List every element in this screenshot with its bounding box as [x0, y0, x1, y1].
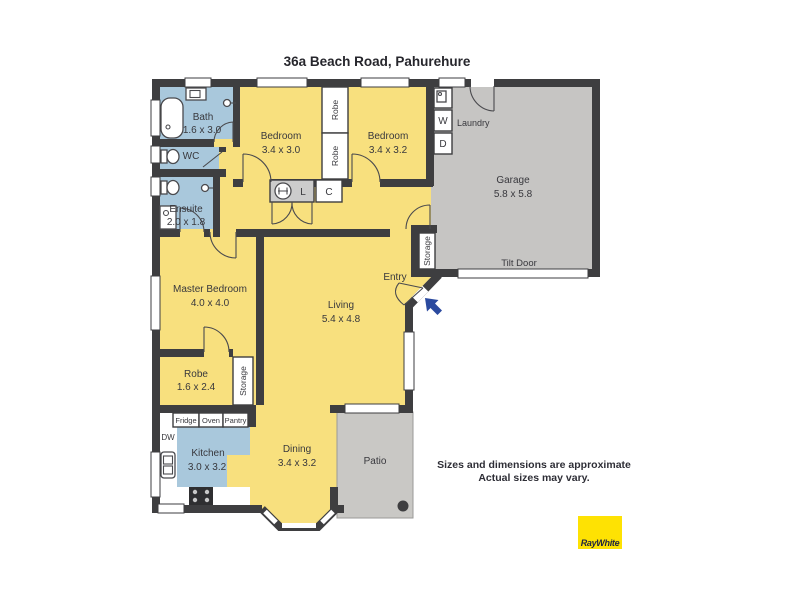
garage-tilt-door-label: Tilt Door: [501, 258, 537, 269]
room-kitchen-dims: 3.0 x 3.2: [188, 462, 227, 473]
wall: [152, 139, 214, 147]
wall: [229, 349, 233, 357]
robe-closet-2-label: Robe: [330, 146, 340, 167]
wc-toilet: [167, 150, 179, 164]
wall: [592, 79, 600, 277]
wall: [219, 147, 226, 152]
cupboard-label: C: [325, 187, 332, 198]
cooktop-burner: [193, 498, 197, 502]
room-kitchen-label: Kitchen: [191, 448, 224, 459]
window-tilt-door: [458, 269, 588, 278]
room-bath-dims: 1.6 x 3.0: [183, 125, 222, 136]
wall: [426, 87, 434, 186]
room-ensuite-dims: 2.0 x 1.8: [167, 217, 206, 228]
wall: [411, 225, 419, 277]
window: [361, 78, 409, 87]
room-entry-label: Entry: [383, 272, 406, 283]
wall: [588, 269, 600, 277]
room-bedroom2-dims: 3.4 x 3.2: [369, 145, 408, 156]
wall: [152, 349, 204, 357]
wall: [256, 236, 264, 405]
cooktop-burner: [193, 490, 197, 494]
room-living-label: Living: [328, 300, 354, 311]
raywhite-logo-text: RayWhite: [581, 538, 620, 548]
window: [345, 404, 399, 413]
window: [404, 332, 414, 390]
room-bedroom1-label: Bedroom: [261, 131, 302, 142]
wall: [233, 139, 240, 147]
patio-post: [398, 501, 409, 512]
window: [151, 276, 160, 330]
storage-garage-label: Storage: [422, 236, 432, 266]
disclaimer-line2: Actual sizes may vary.: [437, 472, 631, 485]
wall: [306, 79, 362, 87]
wall: [494, 79, 600, 87]
linen-label: L: [300, 187, 306, 198]
wall: [204, 229, 210, 237]
window: [151, 177, 160, 196]
bath-vanity: [186, 88, 206, 100]
room-dining-dims: 3.4 x 3.2: [278, 458, 317, 469]
raywhite-logo: RayWhite: [578, 516, 622, 549]
window: [185, 78, 211, 87]
wall: [213, 177, 220, 237]
wall: [233, 179, 243, 187]
bathtub: [161, 98, 183, 138]
window: [151, 452, 160, 497]
ensuite-toilet: [161, 181, 167, 194]
wall: [398, 405, 413, 413]
wall: [152, 229, 180, 237]
floorplan-page: 36a Beach Road, Pahurehure: [0, 0, 800, 600]
floorplan-drawing: Bath 1.6 x 3.0 WC Ensuite 2.0 x 1.8 Bedr…: [0, 0, 800, 600]
cooktop-burner: [205, 490, 209, 494]
room-wc-label: WC: [183, 151, 200, 162]
dishwasher-label: DW: [161, 433, 175, 442]
pantry-label: Pantry: [225, 416, 247, 425]
ensuite-toilet: [167, 181, 179, 195]
room-living-dims: 5.4 x 4.8: [322, 314, 361, 325]
wall: [236, 229, 390, 237]
room-bedroom1-dims: 3.4 x 3.0: [262, 145, 301, 156]
storage-hall-label: Storage: [238, 366, 248, 396]
wall: [330, 405, 346, 413]
washer-label: W: [438, 116, 448, 127]
cooktop: [189, 487, 213, 505]
room-garage-dims: 5.8 x 5.8: [494, 189, 533, 200]
wall: [210, 79, 258, 87]
dryer-label: D: [439, 139, 446, 150]
entry-arrow-icon: [425, 298, 442, 315]
room-dining-label: Dining: [283, 444, 311, 455]
wall: [380, 179, 433, 187]
room-ensuite-label: Ensuite: [169, 204, 203, 215]
window: [151, 146, 160, 163]
room-laundry-label: Laundry: [457, 118, 490, 128]
room-master-dims: 4.0 x 4.0: [191, 298, 230, 309]
cooktop-burner: [205, 498, 209, 502]
oven-label: Oven: [202, 416, 220, 425]
wall: [152, 405, 256, 413]
window: [158, 504, 184, 513]
room-garage-label: Garage: [496, 175, 530, 186]
room-patio-label: Patio: [364, 456, 387, 467]
wc-toilet: [161, 150, 167, 163]
wall: [330, 487, 338, 507]
window: [257, 78, 307, 87]
disclaimer-line1: Sizes and dimensions are approximate: [437, 459, 631, 472]
bath-tap-icon: [224, 100, 231, 107]
window: [439, 78, 465, 87]
room-bedroom2-label: Bedroom: [368, 131, 409, 142]
wall: [219, 170, 226, 177]
wall: [152, 169, 226, 177]
room-master-label: Master Bedroom: [173, 284, 247, 295]
wall: [233, 87, 240, 139]
disclaimer: Sizes and dimensions are approximate Act…: [437, 459, 631, 484]
fridge-label: Fridge: [175, 416, 196, 425]
room-robe-label: Robe: [184, 369, 208, 380]
ensuite-tap-icon: [202, 185, 209, 192]
window: [151, 100, 160, 136]
wall: [408, 79, 440, 87]
robe-closet-1-label: Robe: [330, 100, 340, 121]
room-bath-label: Bath: [193, 112, 214, 123]
room-robe-dims: 1.6 x 2.4: [177, 382, 216, 393]
